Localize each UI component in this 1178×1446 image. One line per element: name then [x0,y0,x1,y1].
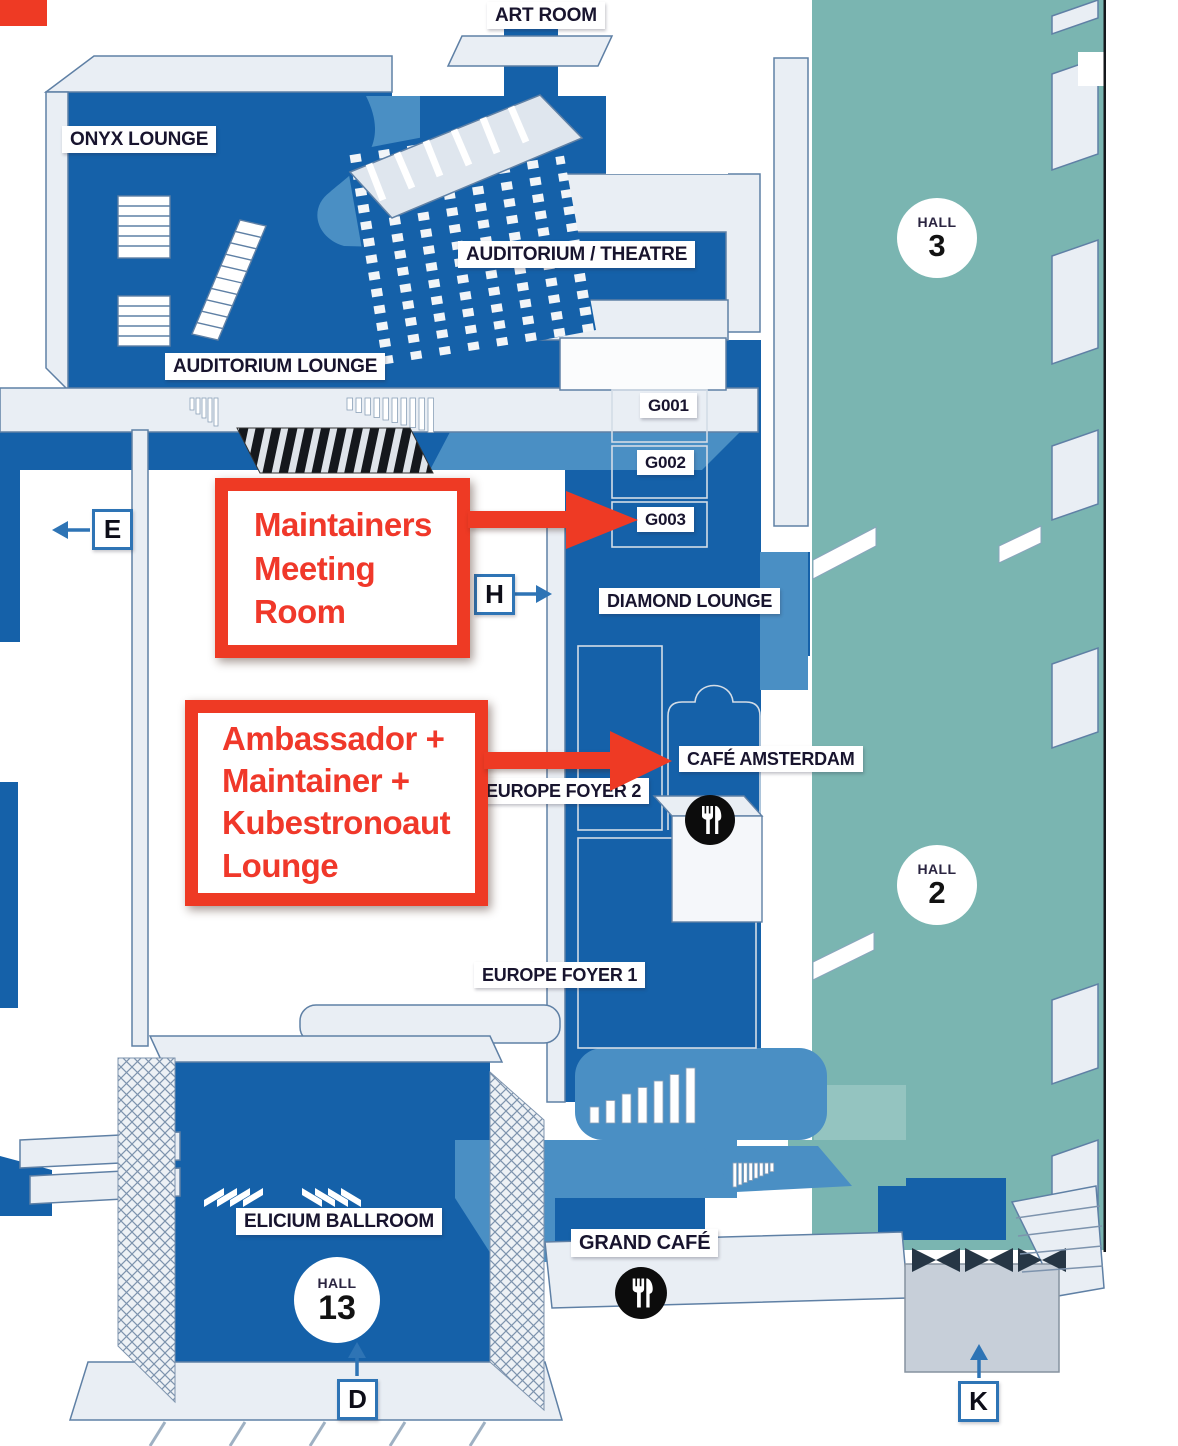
annotation-line: Kubestronoaut [222,802,475,844]
label-grand-cafe: GRAND CAFÉ [571,1229,718,1257]
annotation-line: Ambassador + [222,718,475,760]
hall-word: HALL [918,862,957,876]
hall-word: HALL [918,215,957,229]
label-auditorium-theatre: AUDITORIUM / THEATRE [458,241,695,268]
hall-word: HALL [318,1276,357,1290]
maintainers-meeting-room-annotation: Maintainers Meeting Room [215,478,470,658]
label-elicium-ballroom: ELICIUM BALLROOM [236,1208,442,1235]
lounge-arrow-shaft [484,752,612,769]
utensils-icon [614,1266,668,1325]
lounge-arrow-head [610,731,672,791]
label-onyx-lounge: ONYX LOUNGE [62,126,216,153]
entrance-h: H [474,574,515,615]
floorplan-page: ART ROOM ONYX LOUNGE AUDITORIUM / THEATR… [0,0,1178,1446]
maintainers-arrow-shaft [468,511,568,528]
entrance-k: K [958,1381,999,1422]
annotation-line: Meeting [254,547,457,591]
maintainers-arrow-head [566,491,638,549]
label-art-room: ART ROOM [487,2,605,29]
annotation-line: Room [254,590,457,634]
annotation-line: Lounge [222,845,475,887]
hall-2-badge: HALL 2 [897,845,977,925]
hall-number: 13 [318,1291,356,1325]
entrance-e: E [92,509,133,550]
annotation-line: Maintainers [254,503,457,547]
utensils-icon [684,794,736,851]
hall-number: 2 [928,877,945,908]
entrance-d: D [337,1379,378,1420]
halls-2-3-area [812,0,1106,1252]
label-europe-foyer-1: EUROPE FOYER 1 [474,962,645,988]
roof-gap [606,60,728,174]
label-diamond-lounge: DIAMOND LOUNGE [599,588,780,614]
label-g003: G003 [637,507,694,532]
annotation-line: Maintainer + [222,760,475,802]
label-cafe-amsterdam: CAFÉ AMSTERDAM [679,746,863,772]
label-g001: G001 [640,393,697,418]
hall-number: 3 [928,230,945,261]
label-auditorium-lounge: AUDITORIUM LOUNGE [165,353,385,380]
red-corner-mark [0,0,47,26]
ambassador-lounge-annotation: Ambassador + Maintainer + Kubestronoaut … [185,700,488,906]
hall-3-badge: HALL 3 [897,198,977,278]
hall-13-badge: HALL 13 [294,1257,380,1343]
label-g002: G002 [637,450,694,475]
